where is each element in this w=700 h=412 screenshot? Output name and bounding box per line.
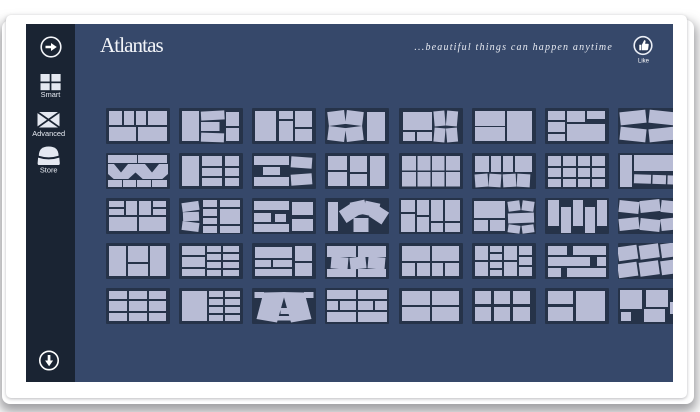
svg-text:Smart: Smart [41, 90, 61, 99]
svg-text:Advanced: Advanced [32, 129, 65, 138]
svg-text:Store: Store [40, 166, 58, 175]
svg-text:Like: Like [638, 59, 650, 65]
